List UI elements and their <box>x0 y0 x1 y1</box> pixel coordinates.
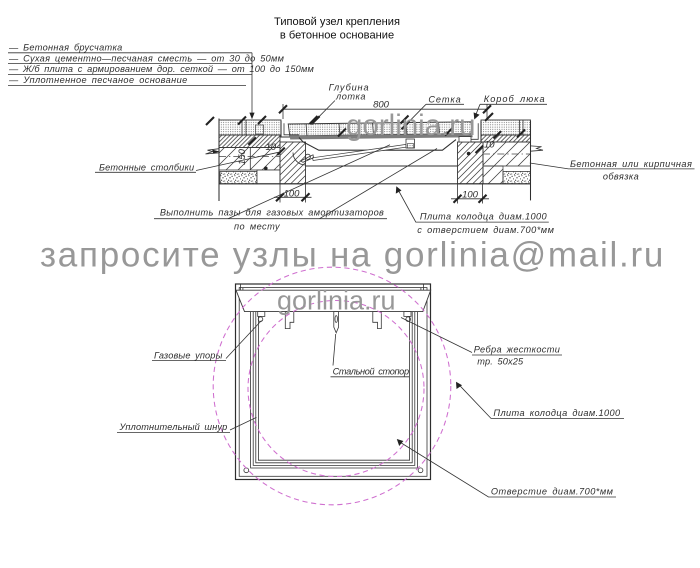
svg-text:Уплотнительный шнур: Уплотнительный шнур <box>119 422 228 432</box>
svg-text:по месту: по месту <box>234 221 281 231</box>
svg-text:Ребра жесткости: Ребра жесткости <box>474 345 561 355</box>
svg-text:Плита колодца диам.1000: Плита колодца диам.1000 <box>493 408 621 418</box>
svg-text:лотка: лотка <box>335 91 366 101</box>
svg-text:10: 10 <box>266 142 277 153</box>
svg-text:gorlinia.ru: gorlinia.ru <box>346 109 476 142</box>
svg-text:Сетка: Сетка <box>428 94 461 104</box>
svg-text:Отверстие диам.700*мм: Отверстие диам.700*мм <box>491 487 614 497</box>
svg-text:запросите узлы на gorlinia@mai: запросите узлы на gorlinia@mail.ru <box>40 236 665 275</box>
svg-text:тр. 50х25: тр. 50х25 <box>477 357 524 367</box>
svg-text:Стальной стопор: Стальной стопор <box>333 367 409 377</box>
svg-text:Типовой узел крепления: Типовой узел крепления <box>274 16 400 28</box>
svg-text:— Сухая цементно—песчаная с: — Сухая цементно—песчаная сместь — от 30… <box>8 53 285 63</box>
svg-text:Короб люка: Короб люка <box>484 94 546 104</box>
svg-text:в бетонное основание: в бетонное основание <box>280 30 394 42</box>
svg-text:Газовые упоры: Газовые упоры <box>154 350 223 360</box>
svg-text:с отверстием диам.700*мм: с отверстием диам.700*мм <box>417 225 554 235</box>
svg-text:10: 10 <box>484 140 495 151</box>
svg-text:Бетонные столбики: Бетонные столбики <box>99 162 194 172</box>
svg-text:gorlinia.ru: gorlinia.ru <box>277 286 396 316</box>
svg-text:— Уплотненное песчаное осно: — Уплотненное песчаное основание <box>8 75 188 85</box>
svg-text:— Ж/б плита с армированием: — Ж/б плита с армированием дор. сеткой —… <box>8 64 314 74</box>
svg-text:Бетонная или кирпичная: Бетонная или кирпичная <box>570 159 692 169</box>
svg-text:150: 150 <box>237 148 248 165</box>
svg-text:Выполнить пазы для газовых: Выполнить пазы для газовых амортизаторов <box>160 208 384 218</box>
svg-text:Плита колодца диам.1000: Плита колодца диам.1000 <box>420 211 548 221</box>
svg-text:обвязка: обвязка <box>603 171 639 181</box>
svg-text:100: 100 <box>462 190 479 201</box>
svg-text:— Бетонная брусчатка: — Бетонная брусчатка <box>8 43 123 53</box>
